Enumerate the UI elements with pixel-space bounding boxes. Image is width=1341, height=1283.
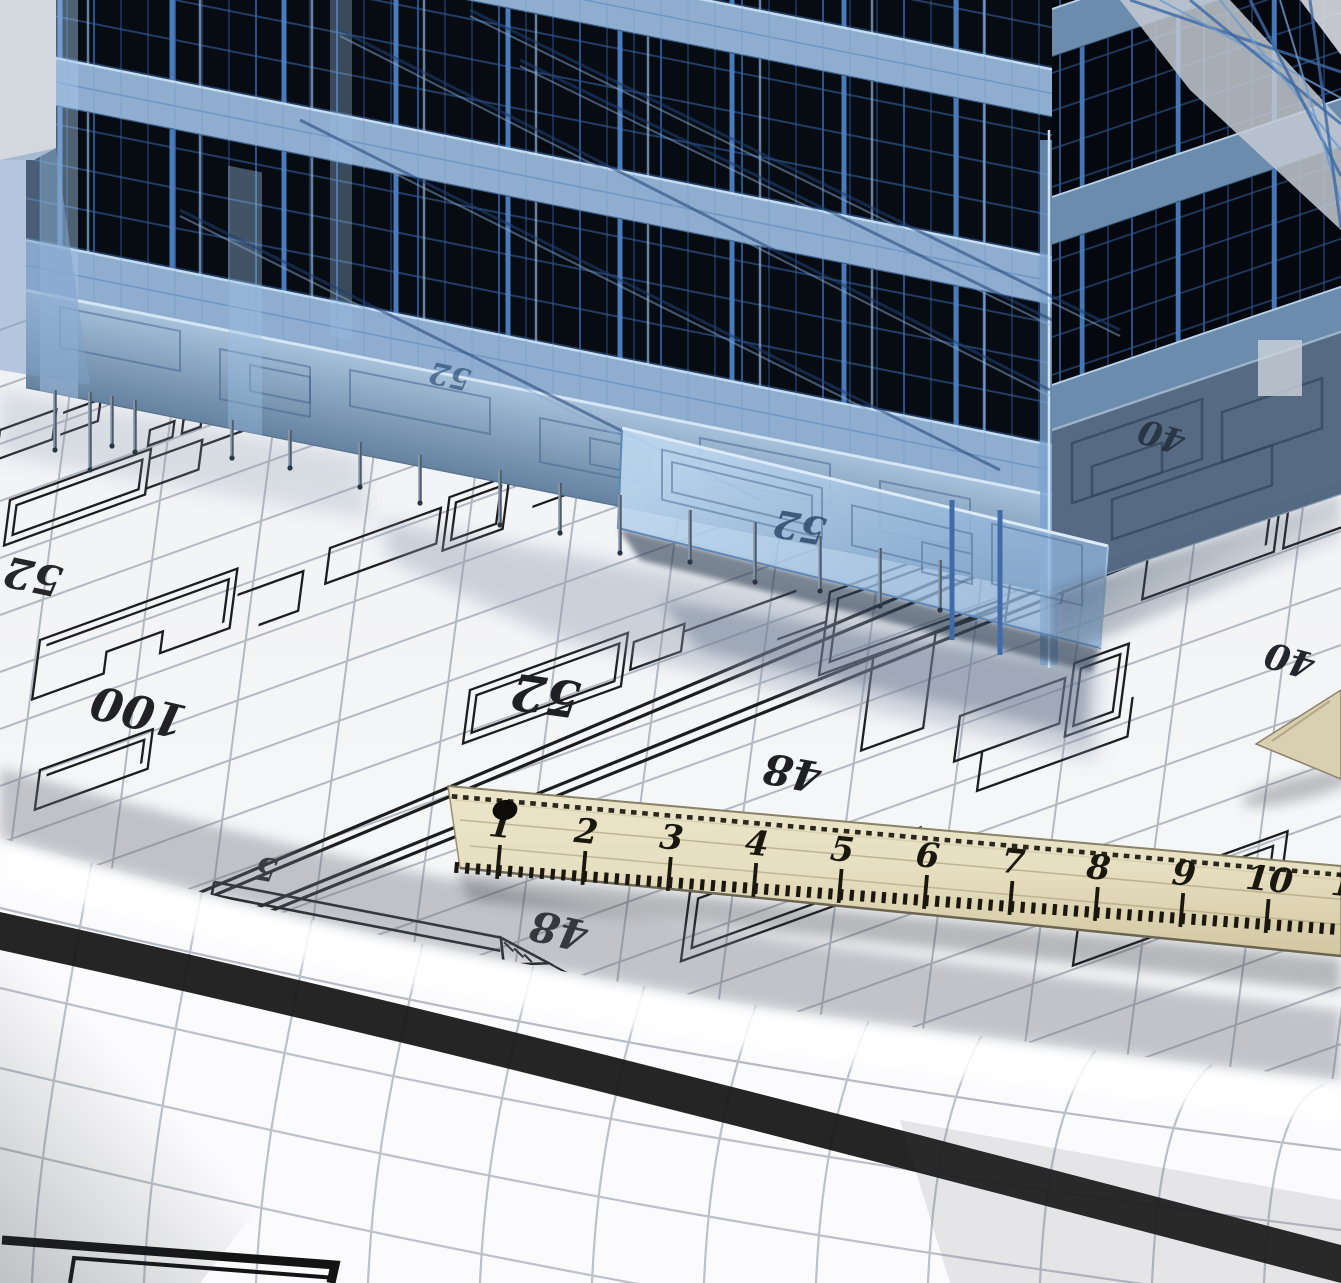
ruler-number: 8 [1084,847,1113,889]
ruler-number: 6 [914,835,942,877]
ruler-number: 10 [1244,858,1296,903]
ruler-number: 9 [1170,853,1198,895]
ruler-number: 2 [571,811,600,853]
blueprint-dimension-label: 52 [770,501,830,555]
ruler-number: 3 [658,817,686,859]
blueprint-scene-illustration: 521005248405484052521234567891011 [0,0,1341,1283]
ruler-number: 5 [828,829,856,871]
blueprint-dimension-label: 48 [759,743,825,801]
ruler-number: 7 [999,841,1027,883]
sky-corner [0,0,56,160]
blueprint-scene: 521005248405484052521234567891011 [0,0,1341,1283]
ruler-number: 4 [743,823,771,865]
blueprint-dimension-label: 52 [507,661,584,729]
